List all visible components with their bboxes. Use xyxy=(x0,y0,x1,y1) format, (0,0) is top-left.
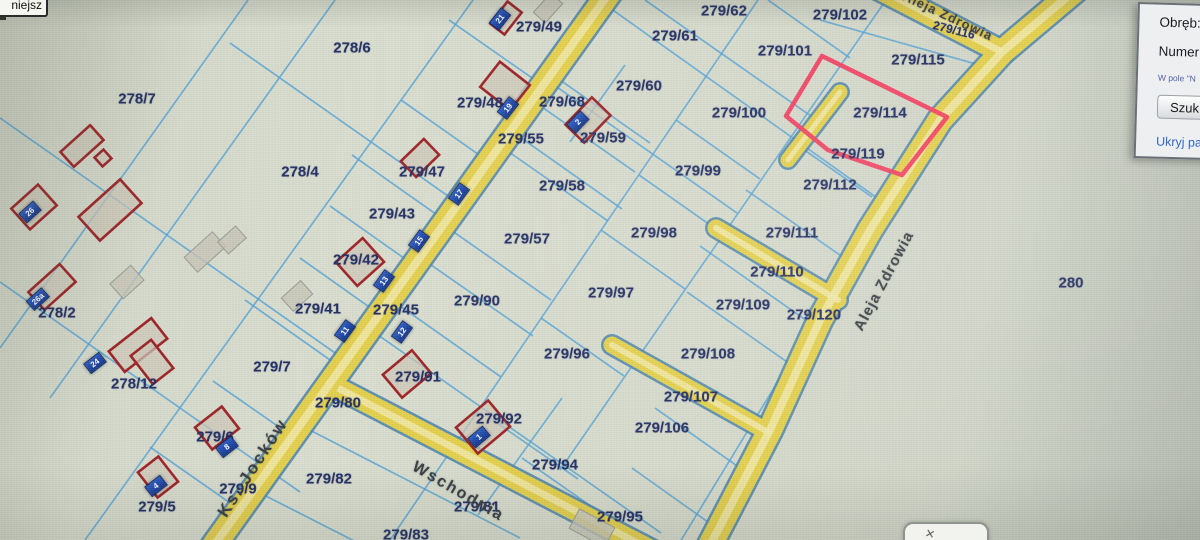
parcel-boundary-line xyxy=(554,85,737,213)
parcel-boundary-line xyxy=(390,0,758,540)
building xyxy=(336,238,384,286)
cadastral-map[interactable]: 278/6278/7278/4278/2278/12279/49279/4827… xyxy=(0,0,1200,540)
map-popup-partial[interactable]: ✕ xyxy=(903,522,989,540)
building xyxy=(195,407,239,450)
obreb-label: Obręb: xyxy=(1159,15,1200,33)
parcel-boundary-line xyxy=(0,118,348,362)
numer-label: Numer n xyxy=(1158,44,1200,62)
geoportal-map-screen: 278/6278/7278/4278/2278/12279/49279/4827… xyxy=(0,0,1200,540)
building xyxy=(490,1,521,34)
building xyxy=(401,139,439,177)
hide-panel-link[interactable]: Ukryj pa xyxy=(1156,135,1200,150)
building xyxy=(95,150,112,167)
parcel-boundary-line xyxy=(448,228,551,300)
building xyxy=(11,185,56,230)
zoom-out-button[interactable]: niejsz xyxy=(0,0,48,17)
building xyxy=(78,179,141,240)
parcel-boundary-line xyxy=(506,150,608,221)
road-center-stripe xyxy=(612,345,768,432)
road-center-stripe xyxy=(705,52,1002,540)
parcel-boundary-line xyxy=(601,230,685,289)
search-button[interactable]: Szuk xyxy=(1157,95,1200,121)
parcel-boundary-line xyxy=(517,135,622,209)
parcel-boundary-line xyxy=(424,260,533,336)
parcel-boundary-line xyxy=(676,120,760,179)
parcel-boundary-line xyxy=(632,468,715,527)
building xyxy=(565,97,610,142)
building-unclassified xyxy=(110,265,144,299)
parcel-boundary-line xyxy=(258,492,372,540)
building-unclassified xyxy=(281,281,312,312)
parcel-boundary-line xyxy=(768,0,850,58)
search-panel: Obręb: Numer n W pole "N Szuk Ukryj pa xyxy=(1134,2,1200,161)
search-hint-text: W pole "N xyxy=(1158,73,1200,86)
building-unclassified xyxy=(184,232,226,272)
close-icon[interactable]: ✕ xyxy=(923,526,936,540)
road-center-stripe xyxy=(716,228,838,300)
building xyxy=(383,350,431,397)
parcel-boundary-line xyxy=(0,282,300,492)
building xyxy=(28,264,75,310)
parcel-boundary-line xyxy=(50,0,335,398)
building-unclassified xyxy=(533,0,562,23)
map-canvas[interactable] xyxy=(0,0,1200,540)
parcel-boundary-line xyxy=(687,292,790,364)
